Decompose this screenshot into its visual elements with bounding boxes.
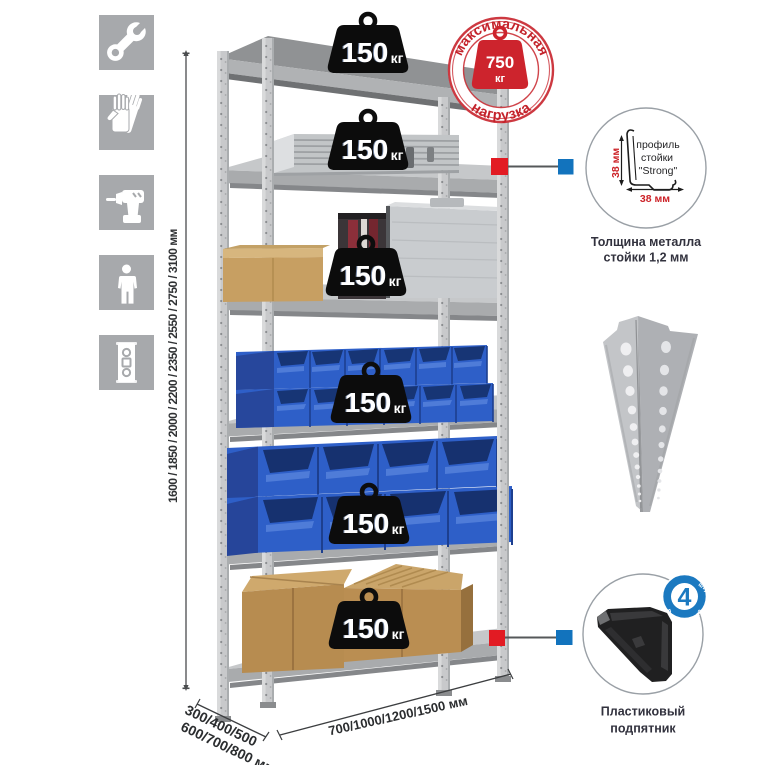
- svg-text:стойки: стойки: [641, 152, 673, 164]
- svg-text:38 мм: 38 мм: [640, 193, 670, 205]
- svg-text:"Strong": "Strong": [639, 165, 678, 177]
- svg-text:Толщина металла: Толщина металла: [591, 235, 702, 249]
- svg-text:кг: кг: [495, 73, 506, 85]
- svg-text:750: 750: [486, 53, 514, 72]
- svg-text:4: 4: [678, 584, 692, 612]
- svg-text:Пластиковый: Пластиковый: [601, 705, 685, 719]
- svg-text:подпятник: подпятник: [610, 722, 676, 736]
- svg-text:38 мм: 38 мм: [610, 148, 622, 178]
- svg-text:профиль: профиль: [636, 139, 680, 151]
- svg-text:1600 / 1850 / 2000 / 2200 / 23: 1600 / 1850 / 2000 / 2200 / 2350 / 2550 …: [166, 228, 180, 503]
- svg-text:стойки 1,2 мм: стойки 1,2 мм: [604, 251, 689, 265]
